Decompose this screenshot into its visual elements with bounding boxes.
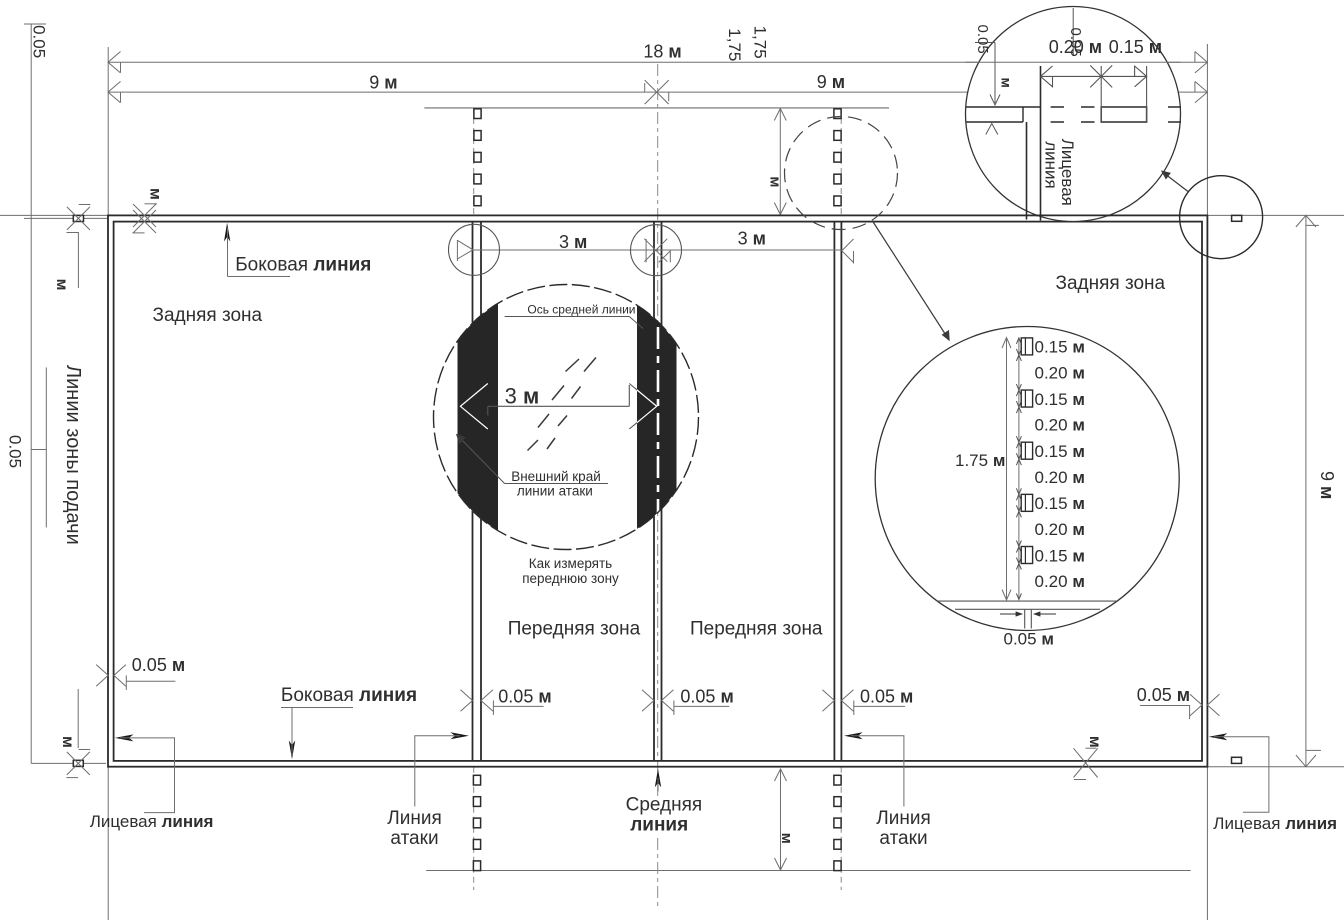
svg-text:Линия: Линия: [387, 808, 441, 829]
svg-text:0.15 м: 0.15 м: [1109, 37, 1162, 57]
svg-text:м: м: [59, 736, 76, 748]
svg-text:0.20 м: 0.20 м: [1035, 520, 1085, 539]
svg-text:18 м: 18 м: [643, 41, 681, 61]
svg-text:9 м: 9 м: [1317, 471, 1337, 499]
svg-text:1,75: 1,75: [751, 26, 770, 59]
svg-text:Внешний край: Внешний край: [511, 469, 601, 484]
svg-text:линии атаки: линии атаки: [517, 484, 593, 499]
svg-text:Боковая линия: Боковая линия: [235, 255, 371, 276]
svg-text:Как измерять: Как измерять: [529, 556, 612, 571]
svg-text:0.15 м: 0.15 м: [1035, 546, 1085, 565]
svg-text:0.15 м: 0.15 м: [1035, 442, 1085, 461]
svg-text:0.05 м: 0.05 м: [132, 655, 185, 675]
svg-text:0.05: 0.05: [974, 25, 991, 54]
svg-text:0.05 м: 0.05 м: [860, 687, 913, 707]
svg-text:линия: линия: [1042, 141, 1061, 189]
svg-text:1.75 м: 1.75 м: [955, 451, 1005, 470]
svg-text:0.05: 0.05: [6, 435, 25, 468]
svg-text:линия: линия: [630, 815, 688, 836]
svg-text:Линия: Линия: [876, 808, 930, 829]
svg-text:Лицевая линия: Лицевая линия: [1213, 814, 1337, 833]
svg-text:0.05 м: 0.05 м: [1137, 685, 1190, 705]
svg-text:0.05: 0.05: [1067, 28, 1084, 57]
svg-text:9 м: 9 м: [369, 73, 397, 93]
svg-text:Передняя зона: Передняя зона: [690, 619, 823, 640]
svg-text:0.15 м: 0.15 м: [1035, 390, 1085, 409]
svg-text:Задняя зона: Задняя зона: [153, 305, 263, 326]
svg-text:3 м: 3 м: [505, 384, 540, 409]
svg-text:м: м: [1086, 736, 1103, 748]
svg-text:0.20 м: 0.20 м: [1035, 363, 1085, 382]
svg-text:Задняя зона: Задняя зона: [1056, 273, 1166, 294]
svg-text:0.05 м: 0.05 м: [680, 687, 733, 707]
svg-text:0.05 м: 0.05 м: [498, 687, 551, 707]
svg-text:0.20 м: 0.20 м: [1035, 416, 1085, 435]
svg-text:0.20 м: 0.20 м: [1035, 572, 1085, 591]
svg-text:0.15 м: 0.15 м: [1035, 494, 1085, 513]
svg-text:переднюю зону: переднюю зону: [522, 571, 619, 586]
svg-text:Средняя: Средняя: [626, 795, 703, 816]
svg-text:Передняя зона: Передняя зона: [508, 619, 641, 640]
svg-text:атаки: атаки: [879, 828, 927, 849]
svg-text:3 м: 3 м: [738, 229, 766, 249]
svg-text:9 м: 9 м: [817, 72, 845, 92]
svg-text:Лицевая линия: Лицевая линия: [90, 812, 214, 831]
svg-text:Боковая линия: Боковая линия: [281, 685, 417, 706]
svg-text:3 м: 3 м: [559, 232, 587, 252]
svg-text:м: м: [767, 176, 784, 187]
svg-text:0.15 м: 0.15 м: [1035, 338, 1085, 357]
svg-text:атаки: атаки: [390, 828, 438, 849]
svg-text:м: м: [778, 833, 795, 844]
svg-text:0.05 м: 0.05 м: [1004, 630, 1054, 649]
svg-text:м: м: [147, 188, 164, 200]
svg-text:0.05: 0.05: [30, 25, 49, 58]
svg-text:м: м: [999, 78, 1015, 88]
svg-text:Ось средней линии: Ось средней линии: [527, 303, 635, 317]
svg-text:1,75: 1,75: [725, 28, 744, 61]
svg-text:Линии зоны подачи: Линии зоны подачи: [62, 365, 84, 545]
svg-text:м: м: [53, 279, 70, 291]
svg-text:0.20 м: 0.20 м: [1035, 468, 1085, 487]
